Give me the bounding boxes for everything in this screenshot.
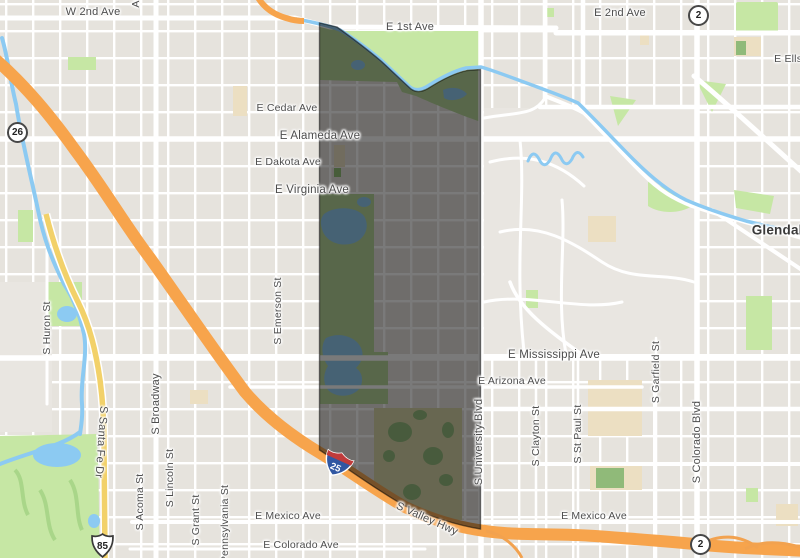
shield-number: 26 [12,127,23,138]
map-canvas[interactable]: W 2nd AveAcoma StE 1st AveE 2nd AveE Ell… [0,0,800,558]
state-route-26-shield: 26 [7,122,28,143]
us-85-shield: 85 [89,532,116,558]
map-art [0,0,800,558]
state-route-2-shield-north: 2 [688,5,709,26]
shield-number: 85 [97,541,108,552]
state-route-2-shield-south: 2 [690,534,711,555]
shield-number: 2 [698,539,704,550]
shield-number: 2 [696,10,702,21]
